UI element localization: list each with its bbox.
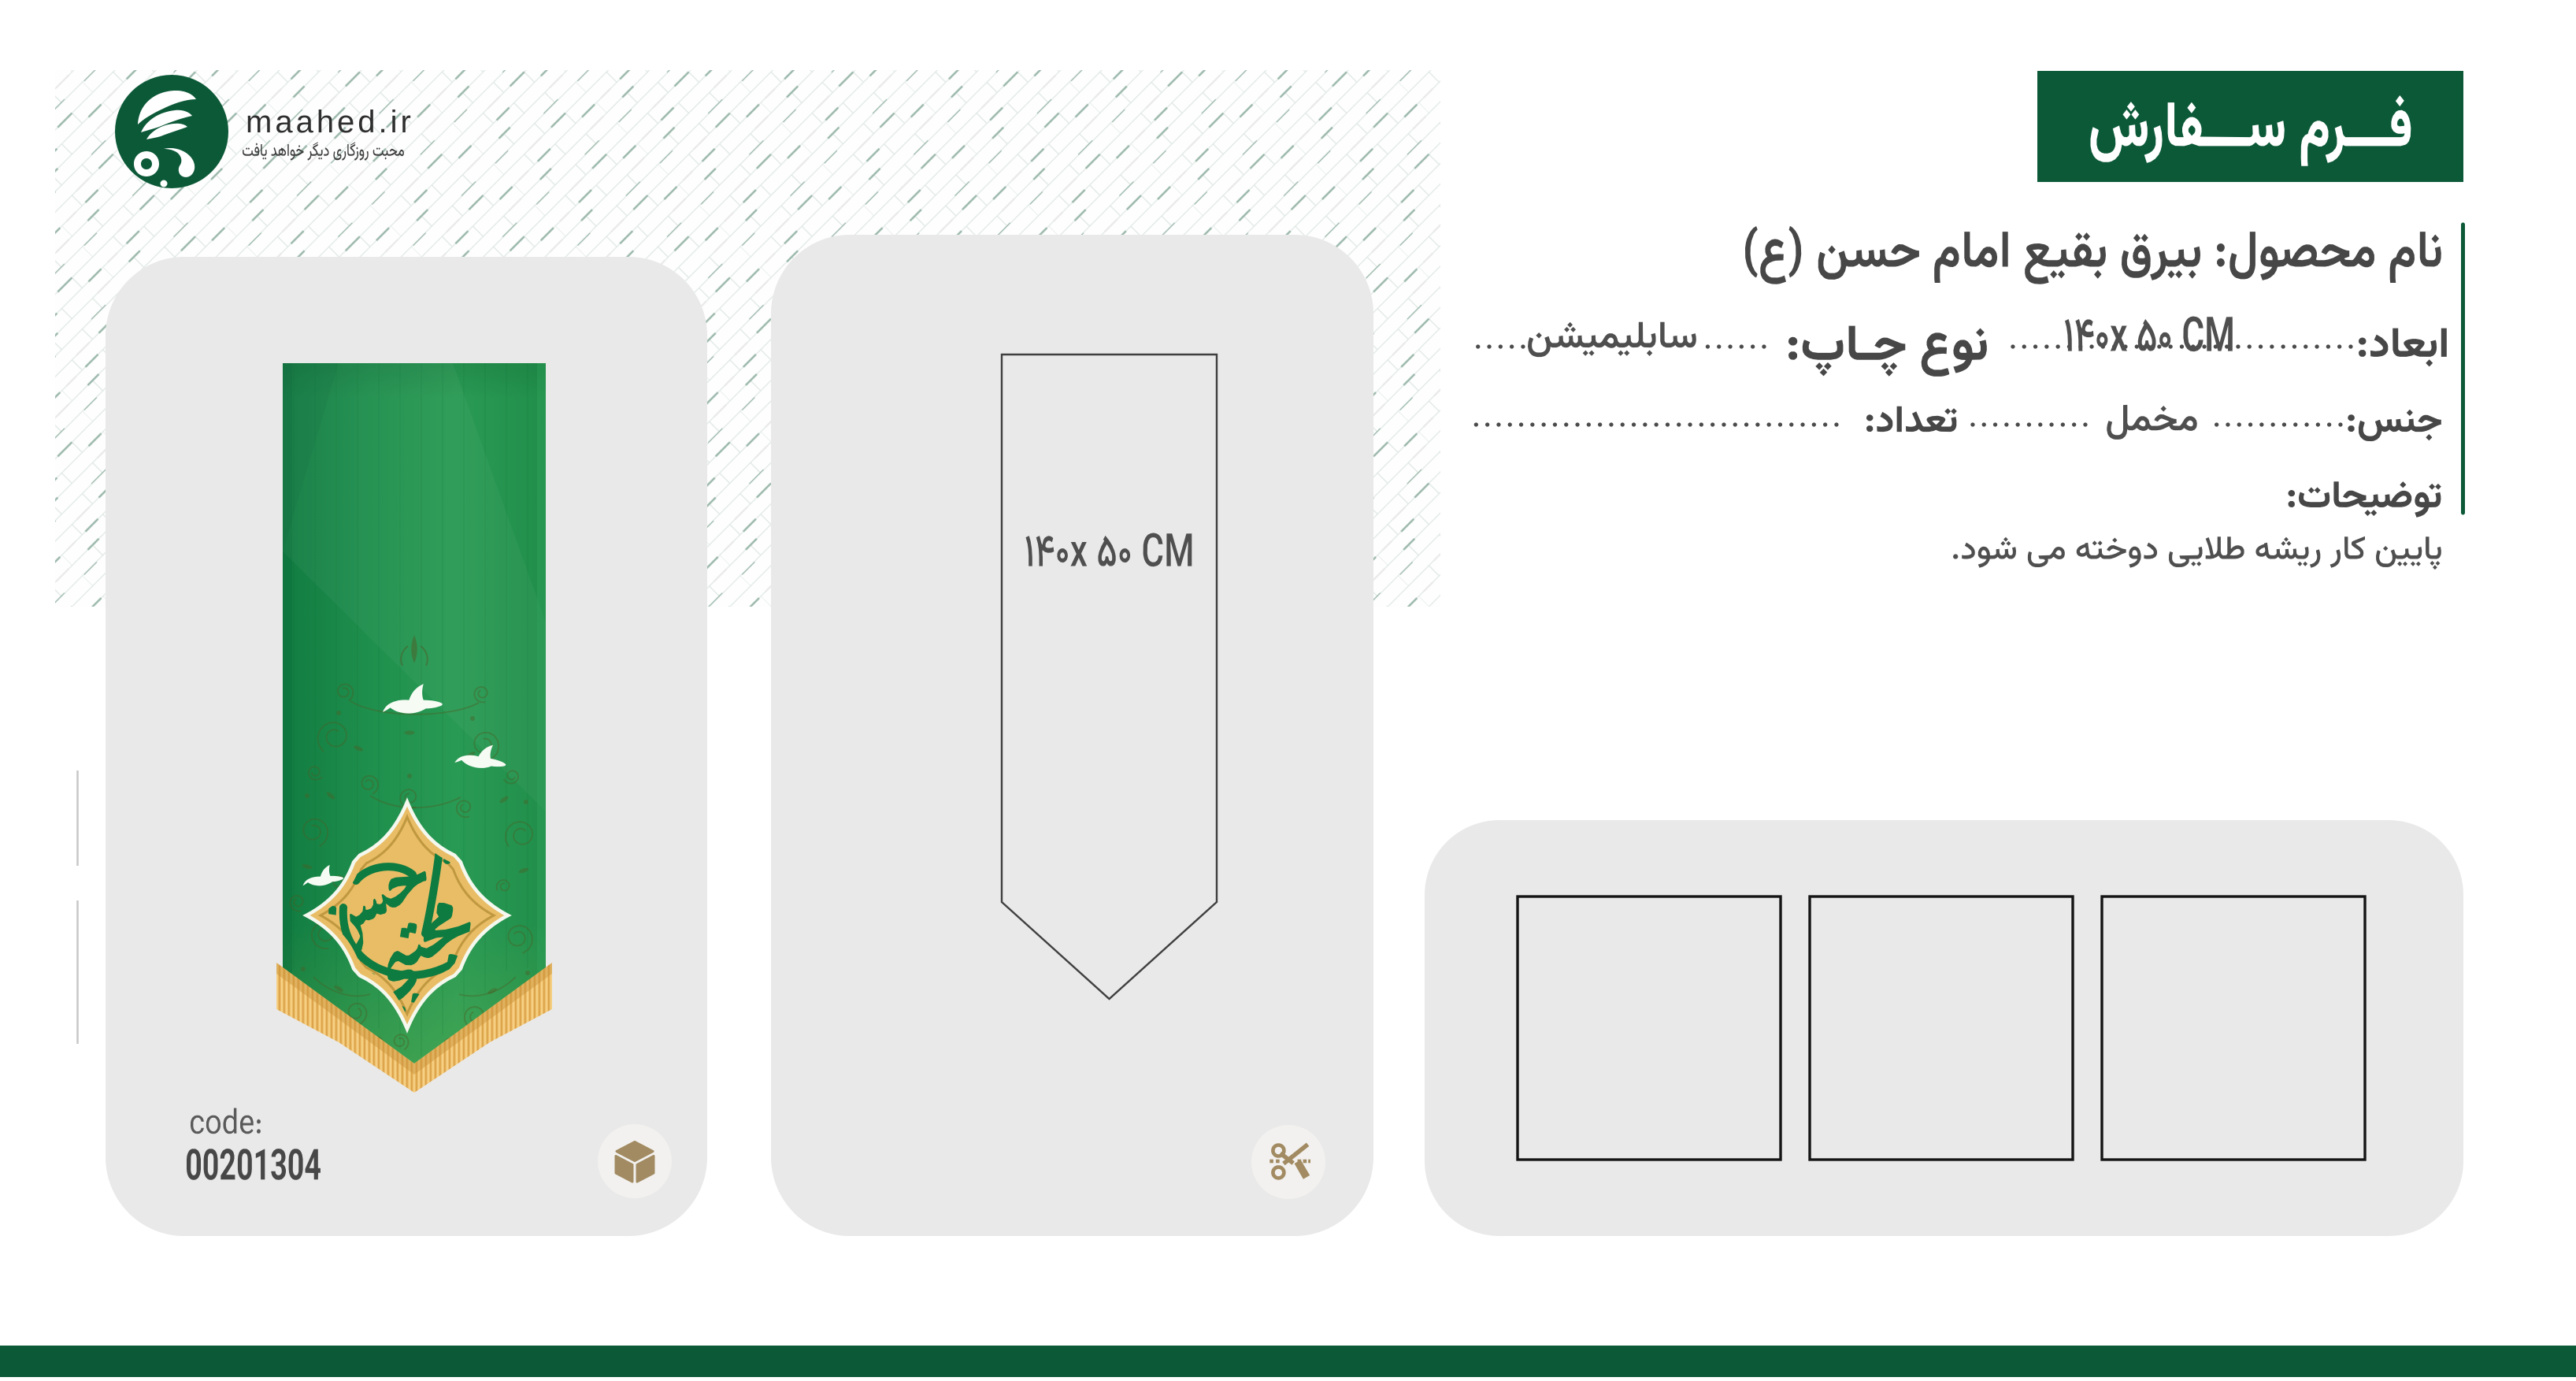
svg-text:maahed.ir: maahed.ir <box>246 105 414 139</box>
